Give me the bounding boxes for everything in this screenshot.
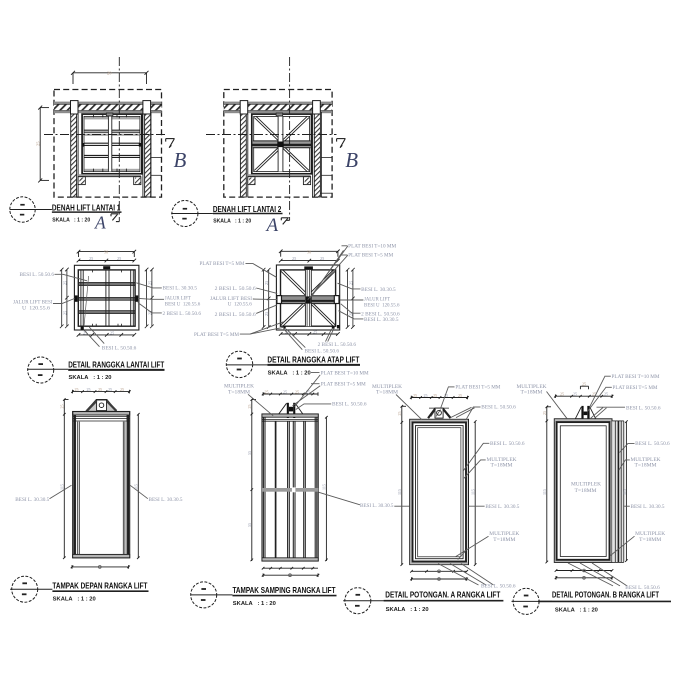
svg-text:115: 115 [397, 489, 402, 495]
svg-text:SKALA : 1 : 20: SKALA : 1 : 20 [52, 217, 90, 223]
svg-text:25: 25 [110, 330, 114, 335]
svg-text:BESI U 120.55.6: BESI U 120.55.6 [165, 301, 201, 307]
svg-text:55: 55 [247, 451, 252, 455]
svg-text:25: 25 [295, 389, 299, 394]
svg-text:T=18MM: T=18MM [639, 537, 661, 543]
svg-text:SKALA : 1 : 20: SKALA : 1 : 20 [268, 370, 311, 376]
svg-text:BESI L. 30.30.5: BESI L. 30.30.5 [360, 503, 394, 509]
svg-text:25: 25 [62, 311, 67, 315]
svg-text:TAMPAK DEPAN RANGKA LIFT: TAMPAK DEPAN RANGKA LIFT [52, 581, 147, 590]
svg-text:BESI L. 50.50.6: BESI L. 50.50.6 [635, 441, 670, 447]
svg-text:BESI L. 50.50.6: BESI L. 50.50.6 [305, 348, 340, 354]
svg-text:DETAIL RANGGKA ATAP LIFT: DETAIL RANGGKA ATAP LIFT [267, 355, 359, 364]
svg-text:25: 25 [542, 411, 547, 415]
svg-text:BESI U 120.55.6: BESI U 120.55.6 [364, 302, 400, 308]
svg-text:PLAT BESI T=5 MM: PLAT BESI T=5 MM [194, 332, 239, 338]
svg-text:DETAIL POTONGAN. B RANGKA LIFT: DETAIL POTONGAN. B RANGKA LIFT [552, 590, 659, 599]
svg-text:DETAIL POTONGAN. A RANGKA LIFT: DETAIL POTONGAN. A RANGKA LIFT [385, 590, 500, 599]
svg-text:25: 25 [120, 387, 124, 392]
svg-text:B: B [174, 148, 187, 172]
svg-text:BESI L. 30.30.5: BESI L. 30.30.5 [364, 317, 399, 323]
svg-text:A: A [265, 215, 279, 236]
svg-text:25: 25 [320, 256, 324, 261]
svg-text:25: 25 [265, 389, 269, 394]
svg-text:25: 25 [247, 405, 252, 409]
svg-text:T=18MM: T=18MM [635, 463, 657, 469]
svg-text:A: A [94, 213, 106, 233]
svg-text:2 BESI L. 50.50.6: 2 BESI L. 50.50.6 [163, 311, 202, 317]
svg-text:PLAT BESI T=5 MM: PLAT BESI T=5 MM [200, 261, 245, 267]
svg-text:55: 55 [247, 523, 252, 527]
svg-text:U 120.55.6: U 120.55.6 [228, 301, 252, 307]
svg-text:20: 20 [107, 70, 112, 75]
svg-text:DENAH LIFT LANTAI 1: DENAH LIFT LANTAI 1 [52, 203, 121, 212]
svg-text:BESI L. 50.50.6: BESI L. 50.50.6 [481, 583, 516, 589]
svg-text:25: 25 [62, 281, 67, 285]
svg-text:BESI L. 50.50.6: BESI L. 50.50.6 [626, 406, 661, 412]
svg-text:PLAT BESI T=5 MM: PLAT BESI T=5 MM [613, 385, 658, 391]
svg-text:BESI L. 50.50.6: BESI L. 50.50.6 [490, 441, 525, 447]
svg-text:SKALA : 1 : 20: SKALA : 1 : 20 [555, 608, 598, 614]
svg-text:25: 25 [397, 412, 402, 416]
svg-text:25: 25 [424, 393, 428, 398]
svg-text:115: 115 [542, 489, 547, 495]
svg-text:PLAT BESI T=5 MM: PLAT BESI T=5 MM [348, 253, 393, 259]
svg-text:U 120.55.6: U 120.55.6 [22, 305, 50, 311]
svg-text:25: 25 [313, 329, 317, 334]
svg-text:PLAT BESI T=10 MM: PLAT BESI T=10 MM [321, 370, 369, 376]
svg-text:B: B [345, 148, 358, 172]
svg-text:BESI L. 30.30.5: BESI L. 30.30.5 [149, 497, 183, 503]
svg-text:25: 25 [560, 392, 564, 397]
svg-text:BESI L. 30.30.5: BESI L. 30.30.5 [631, 504, 665, 510]
svg-text:25: 25 [348, 281, 353, 285]
svg-text:115: 115 [322, 484, 327, 490]
svg-text:25: 25 [87, 387, 91, 392]
svg-text:PLAT BESI T=10 MM: PLAT BESI T=10 MM [612, 374, 660, 380]
svg-text:BESI L. 30.30.5: BESI L. 30.30.5 [361, 287, 396, 293]
svg-text:2 BESI L. 50.50.6: 2 BESI L. 50.50.6 [215, 312, 256, 318]
svg-text:50: 50 [104, 250, 108, 255]
svg-text:25: 25 [75, 387, 79, 392]
svg-text:BESI L. 30.30.5: BESI L. 30.30.5 [485, 504, 519, 510]
svg-text:PLAT BESI T=10 MM: PLAT BESI T=10 MM [348, 243, 396, 249]
svg-text:BESI L. 50.50.6: BESI L. 50.50.6 [332, 402, 367, 408]
svg-text:115: 115 [471, 489, 476, 495]
svg-text:25: 25 [604, 392, 608, 397]
svg-text:25: 25 [147, 281, 152, 285]
svg-text:SKALA : 1 : 20: SKALA : 1 : 20 [213, 219, 251, 225]
svg-text:25: 25 [108, 387, 112, 392]
svg-text:SKALA : 1 : 20: SKALA : 1 : 20 [386, 607, 429, 613]
svg-text:SKALA : 1 : 20: SKALA : 1 : 20 [69, 375, 112, 381]
svg-text:25: 25 [582, 381, 586, 386]
svg-text:25: 25 [264, 312, 269, 316]
svg-text:2 BESI L. 50.50.6: 2 BESI L. 50.50.6 [318, 342, 357, 348]
svg-text:50: 50 [307, 249, 311, 254]
svg-text:SKALA : 1 : 20: SKALA : 1 : 20 [53, 597, 96, 603]
svg-text:25: 25 [264, 281, 269, 285]
svg-text:25: 25 [98, 387, 102, 392]
svg-text:115: 115 [60, 484, 65, 490]
svg-text:DENAH LIFT LANTAI 2: DENAH LIFT LANTAI 2 [213, 205, 282, 214]
svg-text:DETAIL RANGGKA LANTAI LIFT: DETAIL RANGGKA LANTAI LIFT [68, 361, 164, 370]
svg-text:SKALA : 1 : 20: SKALA : 1 : 20 [233, 601, 276, 607]
svg-text:25: 25 [292, 256, 296, 261]
svg-text:BESI L. 30.30.5: BESI L. 30.30.5 [163, 286, 198, 292]
svg-text:MULTIPLEK: MULTIPLEK [571, 482, 601, 488]
svg-text:25: 25 [283, 389, 287, 394]
svg-text:115: 115 [622, 489, 627, 495]
svg-text:T=18MM: T=18MM [575, 488, 597, 494]
svg-text:BESI L. 50.50.6: BESI L. 50.50.6 [102, 345, 137, 351]
svg-text:25: 25 [413, 393, 417, 398]
svg-text:T=18MM: T=18MM [491, 463, 513, 469]
svg-text:T=18MM: T=18MM [521, 390, 543, 396]
svg-text:25: 25 [458, 393, 462, 398]
svg-text:25: 25 [433, 393, 437, 398]
svg-text:25: 25 [36, 141, 41, 146]
svg-text:25: 25 [89, 256, 93, 261]
svg-text:T=18MM: T=18MM [376, 390, 398, 396]
svg-text:T=18MM: T=18MM [493, 537, 515, 543]
svg-text:PLAT BESI T=5 MM: PLAT BESI T=5 MM [321, 382, 366, 388]
svg-text:BESI L. 30.30.5: BESI L. 30.30.5 [15, 497, 49, 503]
svg-text:2 BESI L. 50.50.6: 2 BESI L. 50.50.6 [215, 286, 256, 292]
svg-text:115: 115 [134, 484, 139, 490]
svg-text:25: 25 [60, 405, 65, 409]
svg-text:T=18MM: T=18MM [228, 389, 250, 395]
svg-text:25: 25 [573, 392, 577, 397]
svg-text:TAMPAK SAMPING RANGKA LIFT: TAMPAK SAMPING RANGKA LIFT [233, 586, 336, 595]
svg-text:BESI L. 50.50.6: BESI L. 50.50.6 [481, 405, 516, 411]
svg-text:25: 25 [117, 256, 121, 261]
svg-text:PLAT BESI T=5 MM: PLAT BESI T=5 MM [455, 385, 500, 391]
svg-text:BESI L. 50.50.6: BESI L. 50.50.6 [20, 272, 55, 278]
